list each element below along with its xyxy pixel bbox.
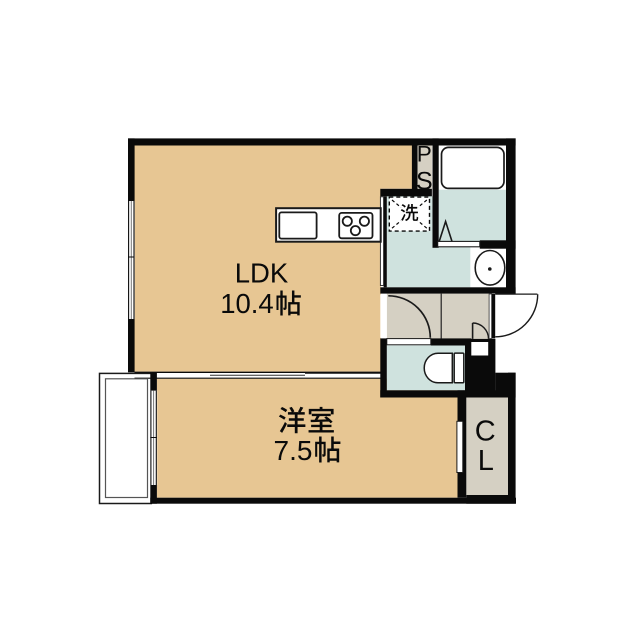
svg-text:L: L	[478, 445, 494, 477]
svg-text:7.5: 7.5	[274, 435, 313, 466]
svg-text:10.4: 10.4	[220, 288, 274, 319]
svg-text:LDK: LDK	[235, 257, 289, 288]
svg-text:C: C	[475, 416, 496, 448]
